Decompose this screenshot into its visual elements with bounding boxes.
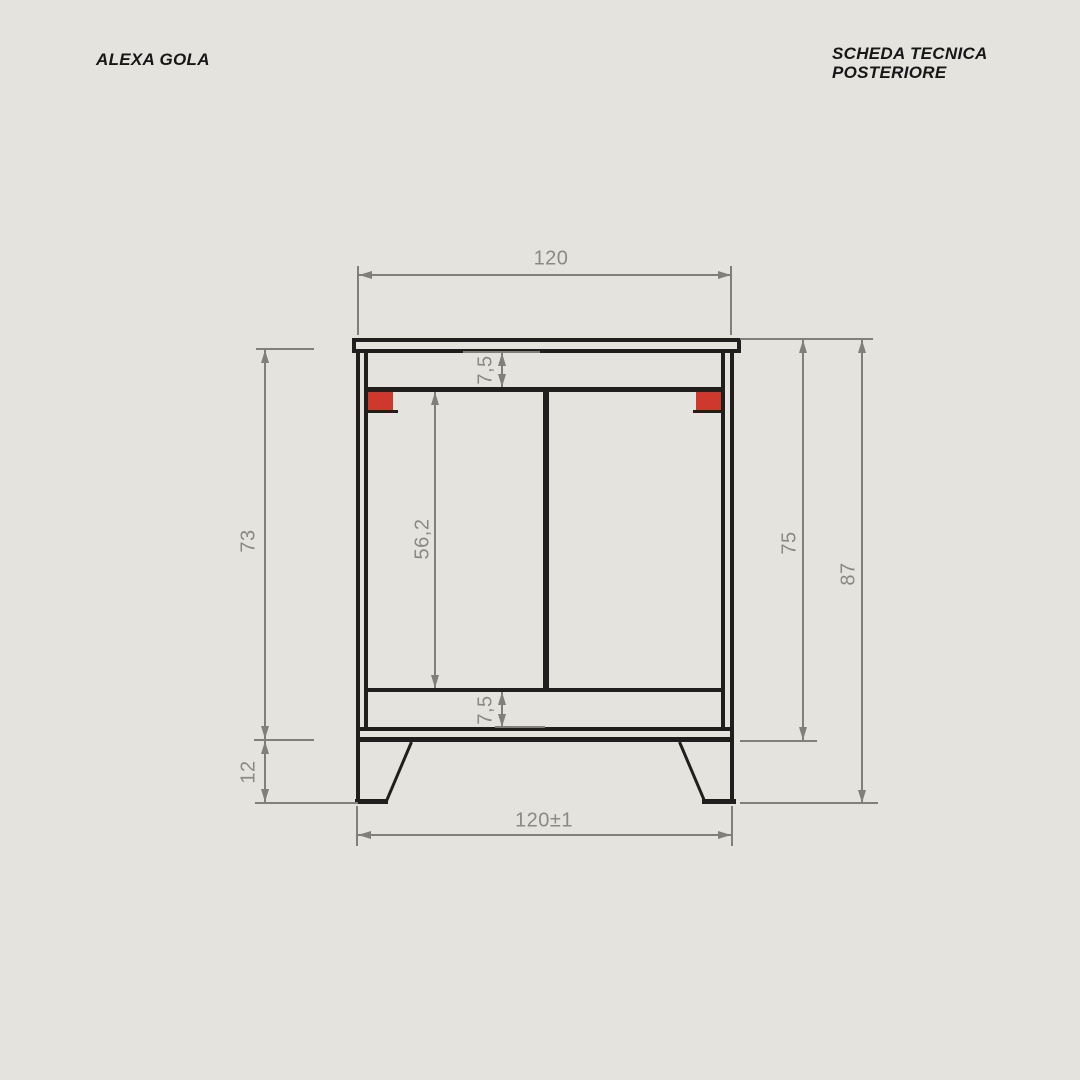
right-red-fitting	[696, 392, 721, 411]
dim-arrow-up-icon	[799, 340, 807, 353]
dim-arrow-down-icon	[498, 714, 506, 727]
ext-line-body-bottom	[740, 740, 817, 742]
ext-line-floor-left	[255, 802, 358, 804]
ext-line-floor-right	[740, 802, 878, 804]
dim-label-carcass-height: 73	[238, 529, 261, 552]
dim-arrow-up-icon	[498, 692, 506, 705]
ext-line-bottom-width-right	[731, 806, 733, 846]
dim-arrow-up-icon	[261, 350, 269, 363]
dim-arrow-left-icon	[359, 271, 372, 279]
left-leg-foot	[355, 799, 388, 804]
bottom-rail	[368, 688, 721, 692]
technical-sheet: ALEXA GOLA SCHEDA TECNICA POSTERIORE 120…	[0, 0, 1080, 1080]
dim-arrow-down-icon	[498, 374, 506, 387]
left-red-fitting	[368, 392, 393, 411]
dim-arrow-left-icon	[358, 831, 371, 839]
left-leg-slant-edge	[385, 741, 413, 801]
dim-label-body-height: 75	[779, 531, 802, 554]
dim-label-top-offset: 7,5	[475, 355, 498, 384]
right-leg-slant-edge	[678, 741, 706, 801]
dim-label-panel-height: 56,2	[412, 519, 435, 560]
dim-arrow-down-icon	[261, 726, 269, 739]
dim-arrow-right-icon	[718, 271, 731, 279]
right-leg-outer-edge	[730, 742, 734, 804]
dim-arrow-up-icon	[498, 353, 506, 366]
dim-arrow-down-icon	[431, 675, 439, 688]
dim-line-bottom-width	[358, 834, 731, 836]
sheet-title-line1: SCHEDA TECNICA	[832, 44, 988, 63]
ext-line-bottom-width-left	[356, 806, 358, 846]
bottom-panel-line	[360, 727, 734, 731]
dim-label-bottom-offset: 7,5	[475, 695, 498, 724]
right-fitting-base-line	[693, 410, 723, 413]
dim-line-top-width	[359, 274, 731, 276]
dim-arrow-down-icon	[261, 789, 269, 802]
dim-line-carcass-height	[264, 350, 266, 739]
dim-arrow-up-icon	[261, 741, 269, 754]
left-fitting-base-line	[366, 410, 398, 413]
dim-label-overall-height: 87	[838, 562, 861, 585]
sheet-title-line2: POSTERIORE	[832, 63, 988, 82]
right-leg-foot	[702, 799, 736, 804]
center-divider	[543, 391, 549, 688]
dim-label-top-width: 120	[534, 248, 569, 271]
dim-line-overall-height	[861, 340, 863, 803]
dim-arrow-up-icon	[431, 392, 439, 405]
left-leg-outer-edge	[356, 742, 360, 804]
countertop-panel	[352, 338, 741, 353]
dim-arrow-right-icon	[718, 831, 731, 839]
dim-label-leg-height: 12	[238, 760, 261, 783]
dim-arrow-down-icon	[799, 727, 807, 740]
dim-label-bottom-width: 120±1	[515, 810, 573, 833]
sheet-title: SCHEDA TECNICA POSTERIORE	[832, 44, 988, 82]
dim-arrow-up-icon	[858, 340, 866, 353]
product-title: ALEXA GOLA	[96, 50, 210, 69]
dim-line-body-height	[802, 340, 804, 740]
